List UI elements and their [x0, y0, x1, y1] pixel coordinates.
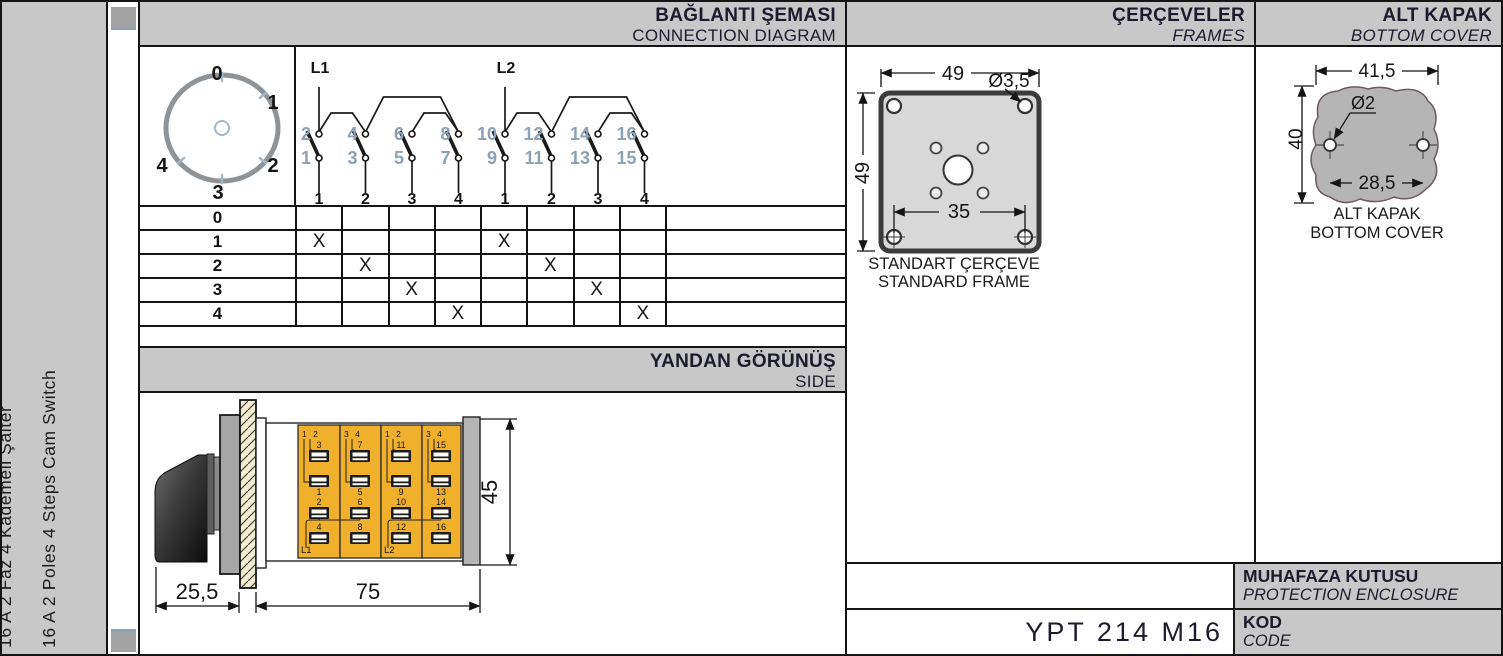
pole-l2-schematic: L2: [477, 60, 649, 205]
step-column-header: 1: [501, 191, 510, 205]
terminal-number: 2: [301, 124, 311, 144]
cover-caption-tr: ALT KAPAK: [1333, 205, 1420, 223]
binder-tab-bottom: [111, 629, 136, 652]
module-feed-label: L1: [301, 545, 312, 556]
enclosure-row: MUHAFAZA KUTUSU PROTECTION ENCLOSURE: [847, 562, 1501, 608]
module-terminal-label: 6: [357, 497, 362, 507]
module-terminal-label: 5: [357, 487, 362, 497]
contact-open-cell: [619, 207, 665, 229]
contact-open-cell: [295, 207, 341, 229]
front-collar: [256, 418, 266, 568]
cover-caption-en: BOTTOM COVER: [1310, 224, 1444, 242]
module-corner-label: 1 2: [385, 429, 403, 439]
contact-open-cell: [388, 231, 434, 253]
connection-title-en: CONNECTION DIAGRAM: [140, 26, 836, 45]
module-terminal-label: 14: [436, 497, 446, 507]
terminal-number: 11: [524, 148, 543, 168]
terminal-number: 7: [440, 148, 450, 168]
contact-open-cell: [480, 303, 526, 325]
dim-cover-height: 40: [1286, 128, 1307, 149]
side-title-tr: YANDAN GÖRÜNÜŞ: [140, 351, 836, 372]
frame-drawing: 49 49 Ø3,5 35 STANDART ÇERÇEVE STANDARD …: [847, 47, 1254, 562]
knob-collar-inner: [207, 454, 214, 534]
contact-closed-mark: X: [388, 279, 434, 301]
terminal-number: 4: [347, 124, 357, 144]
terminal-number: 13: [570, 148, 590, 168]
table-filler-cell: [665, 279, 845, 301]
contact-open-cell: [434, 255, 480, 277]
step-column-header: 4: [454, 191, 463, 205]
table-filler-cell: [665, 231, 845, 253]
dim-knob-depth: 25,5: [176, 579, 219, 604]
contact-open-cell: [526, 303, 572, 325]
position-label: 0: [140, 207, 295, 229]
connection-title-tr: BAĞLANTI ŞEMASI: [140, 5, 836, 26]
contact-open-cell: [341, 231, 387, 253]
code-label-en: CODE: [1243, 632, 1501, 651]
dim-cover-hole: Ø2: [1351, 93, 1375, 113]
contact-open-cell: [341, 207, 387, 229]
terminal-number: 12: [523, 124, 543, 144]
contact-open-cell: [295, 303, 341, 325]
position-label: 4: [140, 303, 295, 325]
contact-open-cell: [434, 207, 480, 229]
step-column-header: 2: [361, 191, 370, 205]
dial-position-1: 1: [267, 92, 278, 114]
connection-header: BAĞLANTI ŞEMASI CONNECTION DIAGRAM: [140, 2, 845, 47]
binder-tab-top: [111, 7, 136, 30]
side-view-section: YANDAN GÖRÜNÜŞ SIDE: [140, 346, 845, 392]
frames-title-en: FRAMES: [847, 26, 1245, 45]
product-sidebar: 16 A 2 Faz 4 Kademeli Şalter 16 A 2 Pole…: [2, 2, 108, 654]
dim-frame-hole-spacing: 35: [948, 201, 970, 223]
contact-closed-mark: X: [619, 303, 665, 325]
module-corner-label: 1 2: [302, 429, 320, 439]
module-terminal-label: 10: [396, 497, 406, 507]
contact-closed-mark: X: [573, 279, 619, 301]
step-column-header: 3: [594, 191, 603, 205]
terminal-number: 5: [394, 148, 404, 168]
binder-strip: [108, 2, 140, 654]
connection-section: BAĞLANTI ŞEMASI CONNECTION DIAGRAM: [140, 2, 847, 654]
table-row: 0: [140, 207, 845, 231]
module-terminal-label: 2: [316, 497, 321, 507]
contact-open-cell: [619, 279, 665, 301]
contact-open-cell: [434, 231, 480, 253]
frame-caption-tr: STANDART ÇERÇEVE: [868, 255, 1039, 273]
contact-closed-mark: X: [341, 255, 387, 277]
contact-open-cell: [388, 207, 434, 229]
contact-open-cell: [388, 255, 434, 277]
dim-frame-width: 49: [942, 63, 964, 85]
dim-frame-height: 49: [852, 162, 874, 184]
position-label: 3: [140, 279, 295, 301]
cam-modules: 1 2 3 1 2 4 L1 3: [298, 425, 461, 558]
terminal-number: 14: [570, 124, 590, 144]
product-code-value: YPT 214 M16: [847, 610, 1233, 654]
switch-table: 01XX2XX3XX4XX: [140, 205, 845, 327]
module-corner-label: 3 4: [344, 429, 362, 439]
enclosure-label-cell: MUHAFAZA KUTUSU PROTECTION ENCLOSURE: [1233, 564, 1501, 608]
contact-closed-mark: X: [434, 303, 480, 325]
module-feed-label: L2: [384, 545, 395, 556]
module-terminal-label: 15: [436, 440, 446, 450]
terminal-number: 16: [616, 124, 636, 144]
contact-open-cell: [480, 207, 526, 229]
connection-diagram-drawing: 0 1 2 3 4 L1: [140, 47, 845, 205]
code-label-cell: KOD CODE: [1233, 610, 1501, 654]
product-title-turkish: 16 A 2 Faz 4 Kademeli Şalter: [0, 406, 16, 649]
code-label-tr: KOD: [1243, 612, 1501, 632]
contact-open-cell: [573, 207, 619, 229]
table-filler-cell: [665, 255, 845, 277]
terminal-number: 15: [616, 148, 636, 168]
pole-l1-label: L1: [311, 60, 330, 77]
frames-header: ÇERÇEVELER FRAMES: [847, 2, 1254, 47]
info-rows: MUHAFAZA KUTUSU PROTECTION ENCLOSURE YPT…: [847, 562, 1501, 654]
contact-open-cell: [295, 279, 341, 301]
module-terminal-label: 7: [357, 440, 362, 450]
pole-l2-label: L2: [497, 60, 516, 77]
table-row: 4XX: [140, 303, 845, 327]
contact-open-cell: [480, 279, 526, 301]
bottom-cover-section: ALT KAPAK BOTTOM COVER: [1256, 2, 1501, 562]
datasheet-page: 16 A 2 Faz 4 Kademeli Şalter 16 A 2 Pole…: [0, 0, 1503, 656]
frames-section: ÇERÇEVELER FRAMES: [847, 2, 1256, 562]
bottom-cover-drawing: 41,5 40 Ø2 28,5 ALT KAPAK BOTTOM COVER: [1256, 47, 1501, 562]
frames-title-tr: ÇERÇEVELER: [847, 5, 1245, 26]
module-terminal-label: 13: [436, 487, 446, 497]
side-view-drawing: 1 2 3 1 2 4 L1 3: [140, 392, 845, 654]
product-title-english: 16 A 2 Poles 4 Steps Cam Switch: [39, 370, 60, 648]
contact-open-cell: [526, 207, 572, 229]
module-terminal-label: 1: [316, 487, 321, 497]
contact-closed-mark: X: [295, 231, 341, 253]
step-column-header: 2: [547, 191, 556, 205]
module-terminal-label: 4: [316, 522, 321, 532]
cover-title-tr: ALT KAPAK: [1256, 5, 1492, 26]
contact-open-cell: [526, 231, 572, 253]
contact-open-cell: [388, 303, 434, 325]
dial-position-2: 2: [267, 155, 278, 177]
enclosure-label-tr: MUHAFAZA KUTUSU: [1243, 566, 1501, 586]
contact-open-cell: [480, 255, 526, 277]
terminal-number: 10: [477, 124, 497, 144]
table-row: 3XX: [140, 279, 845, 303]
dial-position-3: 3: [212, 182, 223, 204]
contact-closed-mark: X: [526, 255, 572, 277]
dial-position-4: 4: [156, 155, 168, 177]
enclosure-label-en: PROTECTION ENCLOSURE: [1243, 586, 1501, 605]
side-title-en: SIDE: [140, 372, 836, 391]
step-column-header: 3: [408, 191, 417, 205]
dim-frame-hole: Ø3,5: [988, 71, 1029, 92]
module-terminal-label: 9: [398, 487, 403, 497]
frame-caption-en: STANDARD FRAME: [878, 273, 1030, 291]
bottom-cover-header: ALT KAPAK BOTTOM COVER: [1256, 2, 1501, 47]
terminal-number: 6: [394, 124, 404, 144]
module-terminal-label: 16: [436, 522, 446, 532]
table-filler-cell: [665, 303, 845, 325]
table-row: 1XX: [140, 231, 845, 255]
rotary-dial: 0 1 2 3 4: [156, 63, 278, 204]
terminal-number: 1: [301, 148, 311, 168]
frame-center-hole: [944, 156, 973, 185]
dim-cover-hole-spacing: 28,5: [1359, 173, 1396, 194]
dim-cover-width: 41,5: [1359, 61, 1396, 82]
panel-section-hatched: [240, 400, 256, 588]
cover-title-en: BOTTOM COVER: [1256, 26, 1492, 45]
module-terminal-label: 3: [316, 440, 321, 450]
contact-open-cell: [341, 279, 387, 301]
terminal-number: 9: [487, 148, 497, 168]
contact-open-cell: [573, 303, 619, 325]
pole-l1-schematic: L1: [301, 60, 463, 205]
step-column-header: 4: [640, 191, 649, 205]
contact-open-cell: [573, 255, 619, 277]
switch-knob: [155, 455, 207, 562]
contact-open-cell: [619, 231, 665, 253]
main-area: BAĞLANTI ŞEMASI CONNECTION DIAGRAM: [140, 2, 1501, 654]
terminal-number: 3: [347, 148, 357, 168]
module-corner-label: 3 4: [426, 429, 444, 439]
dial-position-0: 0: [211, 63, 222, 85]
contact-open-cell: [573, 231, 619, 253]
dial-center-mark: [215, 121, 229, 135]
dim-body-height: 45: [477, 480, 502, 504]
step-column-header: 1: [315, 191, 324, 205]
side-view-header: YANDAN GÖRÜNÜŞ SIDE: [140, 348, 845, 393]
position-label: 1: [140, 231, 295, 253]
contact-open-cell: [341, 303, 387, 325]
contact-open-cell: [526, 279, 572, 301]
terminal-number: 8: [440, 124, 450, 144]
code-row: YPT 214 M16 KOD CODE: [847, 608, 1501, 654]
module-terminal-label: 8: [357, 522, 362, 532]
enclosure-value-cell: [847, 564, 1233, 608]
module-terminal-label: 12: [396, 522, 406, 532]
position-label: 2: [140, 255, 295, 277]
contact-open-cell: [619, 255, 665, 277]
contact-open-cell: [434, 279, 480, 301]
module-terminal-label: 11: [396, 440, 405, 450]
contact-closed-mark: X: [480, 231, 526, 253]
mounting-plate: [220, 415, 240, 574]
table-row: 2XX: [140, 255, 845, 279]
table-filler-cell: [665, 207, 845, 229]
dim-body-length: 75: [356, 579, 380, 604]
contact-open-cell: [295, 255, 341, 277]
